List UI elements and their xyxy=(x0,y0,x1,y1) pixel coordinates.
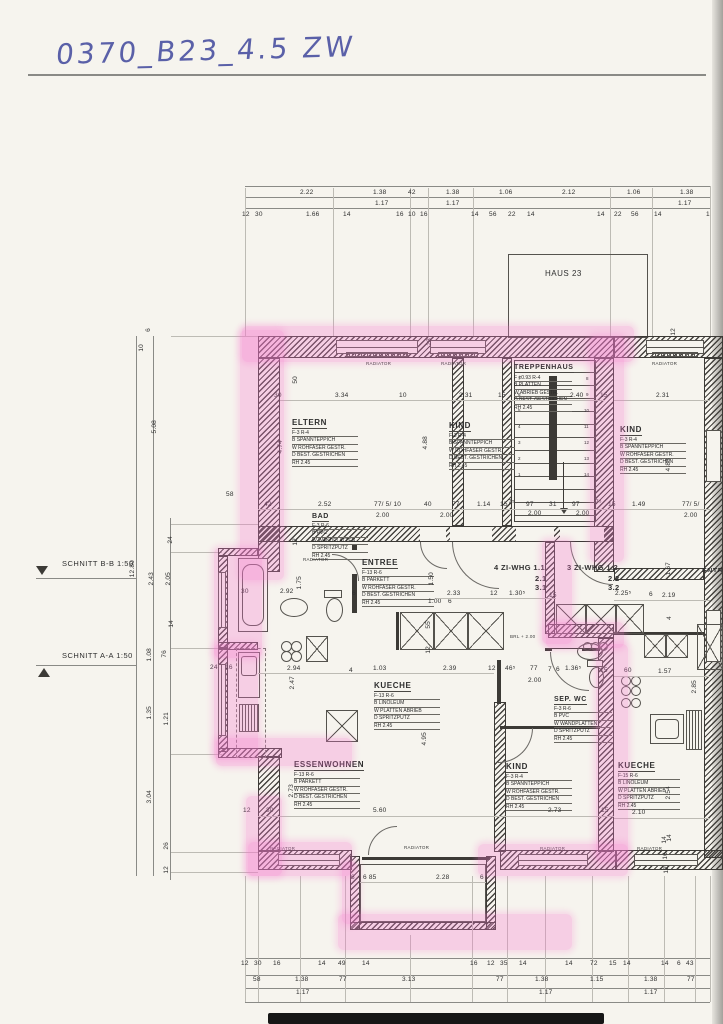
dim-label: 30 xyxy=(255,212,263,219)
spec-line: B PVC xyxy=(312,530,368,537)
witness-line xyxy=(695,876,696,1002)
radiator-label: RADIATOR xyxy=(366,361,391,366)
witness-line xyxy=(507,876,508,1002)
dim-label: 12 xyxy=(243,808,251,815)
dim-label: 14 xyxy=(343,212,351,219)
dim-label: 1.06 xyxy=(499,190,512,197)
dim-label: 50 xyxy=(293,376,300,384)
room-label-kueche: KUECHE xyxy=(374,681,411,692)
dim-label: 1.17 xyxy=(375,201,388,208)
dim-label: 2.33 xyxy=(447,591,460,598)
dim-label: 2.25⁵ xyxy=(615,591,631,598)
spec-line: D BEST. GESTRICHEN xyxy=(294,794,360,801)
room-label-bad: BAD xyxy=(312,513,329,522)
dim-line xyxy=(245,988,710,989)
window xyxy=(218,664,226,736)
dim-label: 2.31 xyxy=(656,393,669,400)
door-swing xyxy=(498,728,533,763)
dim-label: 77 xyxy=(452,502,460,509)
closet-box xyxy=(326,710,358,742)
scan-edge-bottom xyxy=(268,1013,604,1024)
spec-line: B PARKETT xyxy=(362,577,434,584)
dim-label: 77 xyxy=(530,666,538,673)
room-label-kueche-right: KUECHE xyxy=(618,761,655,772)
dim-label: 12 xyxy=(487,961,495,968)
witness-line xyxy=(428,188,429,336)
dim-label: 6 xyxy=(677,961,681,968)
dim-label: 1.50 xyxy=(429,572,436,585)
room-spec-kind-top: F-3 R-4 B SPANNTEPPICH W ROHFASER GESTR.… xyxy=(449,433,515,470)
dim-label: 58 xyxy=(226,492,234,499)
room-spec-treppenhaus: F ±0.93 R-4 B PLATTEN W ABRIEB GESTR. D … xyxy=(514,375,572,412)
room-label-kind-top: KIND xyxy=(449,421,471,432)
dim-label: 2.28 xyxy=(436,875,449,882)
spec-line: W ROHFASER GESTR. xyxy=(292,445,358,452)
apartment-label-whg1-2: 2.1 xyxy=(535,574,547,583)
dim-label: 1.03 xyxy=(373,666,386,673)
dim-label: 1.38 xyxy=(446,190,459,197)
dim-label: 6 xyxy=(352,591,356,598)
dim-label: 4 xyxy=(667,616,674,620)
dim-label: 12 xyxy=(426,646,433,654)
dim-label: 1.17 xyxy=(296,990,309,997)
stove-burner xyxy=(631,698,641,708)
section-label-bb: SCHNITT B-B 1:50 xyxy=(62,560,134,568)
window-line xyxy=(221,572,222,628)
room-label-sep-wc: SEP. WC xyxy=(554,696,587,705)
dim-line xyxy=(258,509,710,510)
dim-label: 77 xyxy=(687,977,695,984)
dim-label: 16 xyxy=(273,961,281,968)
dim-label: 12 xyxy=(164,866,171,874)
section-marker-bb-icon xyxy=(36,566,48,575)
witness-line xyxy=(171,552,222,553)
dim-label: 76 xyxy=(162,650,169,658)
dim-label: 6 xyxy=(351,875,355,882)
room-spec-bad: F-3 R-6 B PVC W WANDPLATTEN D SPRITZPUTZ… xyxy=(312,523,368,560)
dim-label: 2.00 xyxy=(440,513,453,520)
witness-line xyxy=(710,186,711,336)
window-line xyxy=(634,860,698,861)
spec-line: D BEST. GESTRICHEN xyxy=(362,592,434,599)
spec-line: B SPANNTEPPICH xyxy=(292,437,358,444)
apartment-label-whg2-2: 2.2 xyxy=(608,574,620,583)
spec-line: D BEST. GESTRICHEN xyxy=(620,459,686,466)
dim-line xyxy=(360,882,486,883)
door-swing xyxy=(420,542,447,569)
dim-label: 4.74 xyxy=(278,440,285,453)
dim-label: 7⁵ xyxy=(508,500,515,507)
spec-line: F-13 R-6 xyxy=(294,772,360,779)
haus-23-box xyxy=(508,254,648,338)
dim-label: 15 xyxy=(608,502,616,509)
dim-label: 35 xyxy=(500,961,508,968)
dim-label: 1.75 xyxy=(297,576,304,589)
radiator-symbol xyxy=(652,352,698,357)
dim-label: 2.31 xyxy=(459,393,472,400)
floor-plan-page: 0370_B23_4.5 ZW 2.22 1.38 42 1.38 1.06 2… xyxy=(0,0,723,1024)
dim-label: 58 xyxy=(253,977,261,984)
dim-label: 15 xyxy=(498,393,506,400)
dim-label: 6 xyxy=(649,592,653,599)
room-label-essenwohnen: ESSENWOHNEN xyxy=(294,760,364,771)
dim-line xyxy=(614,818,710,819)
room-spec-sep-wc: F-3 R-6 B PVC W WANDPLATTEN D SPRITZPUTZ… xyxy=(554,706,612,743)
spec-line: D BEST. GESTRICHEN xyxy=(506,796,572,803)
stair-number: 1 xyxy=(518,472,521,477)
dim-label: 14 xyxy=(623,961,631,968)
room-label-treppenhaus: TREPPENHAUS xyxy=(514,364,574,373)
spec-line: F-3 R-6 xyxy=(312,523,368,530)
dim-label: 2.22 xyxy=(300,190,313,197)
witness-line xyxy=(171,336,258,337)
dim-label: 2.00 xyxy=(528,511,541,518)
dim-label: 4.95 xyxy=(422,732,429,745)
dim-line xyxy=(245,1002,710,1003)
witness-line xyxy=(171,524,258,525)
spec-line: F-3 R-4 xyxy=(506,774,572,781)
closet-box xyxy=(697,624,723,670)
dim-label: 77/ 5/ xyxy=(682,502,699,509)
spec-line: F-3 R-4 xyxy=(449,433,515,440)
dim-line xyxy=(258,673,494,674)
dim-label: 15 xyxy=(600,393,608,400)
window-line xyxy=(646,347,704,348)
dim-label: 1.30⁵ xyxy=(509,591,525,598)
dim-label: 14 xyxy=(654,212,662,219)
dim-label: 2.94 xyxy=(287,666,300,673)
radiator-label: RADIATOR xyxy=(652,361,677,366)
balcony-wall xyxy=(350,856,360,930)
stair-number: 13 xyxy=(584,456,589,461)
dim-label: 1.36⁵ xyxy=(565,666,581,673)
dim-label: 12 xyxy=(293,538,300,546)
spec-line: B SPANNTEPPICH xyxy=(506,781,572,788)
room-spec-kind-bottom: F-3 R-4 B SPANNTEPPICH W ROHFASER GESTR.… xyxy=(506,774,572,811)
dim-label: 22 xyxy=(508,212,516,219)
apartment-label-whg1: 4 ZI-WHG 1.1 xyxy=(494,563,545,572)
dim-label: 2.40 xyxy=(570,393,583,400)
dim-label: 1.17 xyxy=(446,201,459,208)
dim-label: 15 xyxy=(609,961,617,968)
spec-line: F-3 R-4 xyxy=(292,430,358,437)
stair-number: 8 xyxy=(586,376,589,381)
spec-line: F ±0.93 R-4 xyxy=(514,375,572,382)
radiator-label: RADIATOR xyxy=(404,845,429,850)
parapet-label: BRL + 2.00 xyxy=(510,634,535,639)
dim-label: 16 xyxy=(663,852,670,860)
dim-label: 1 xyxy=(706,212,710,219)
spec-line: D SPRITZPUTZ xyxy=(554,728,612,735)
kitchen-sink-bowl xyxy=(655,719,679,739)
dim-label: 14 xyxy=(519,961,527,968)
dim-label: 2.85 xyxy=(692,680,699,693)
hob-ring xyxy=(599,642,608,651)
dim-label: 14 xyxy=(662,836,669,844)
dim-label: 72 xyxy=(590,961,598,968)
wall-thin xyxy=(497,660,501,704)
spec-line: RH 2.45 xyxy=(449,463,515,470)
dim-label: 2.54 xyxy=(666,786,673,799)
spec-line: D SPRITZPUTZ xyxy=(312,545,368,552)
dim-label: 14 xyxy=(471,212,479,219)
spec-line: D BEST. GESTRICHEN xyxy=(449,455,515,462)
dim-label: 16 xyxy=(420,212,428,219)
stair-number: 9 xyxy=(586,392,589,397)
spec-line: W ROHFASER GESTR. xyxy=(362,585,434,592)
wall xyxy=(258,756,280,852)
dim-line xyxy=(614,676,710,677)
stove-burner xyxy=(291,651,302,662)
dim-line xyxy=(245,186,710,187)
window-line xyxy=(430,347,486,348)
dim-label: 5.08 xyxy=(152,420,159,433)
window-line xyxy=(278,860,340,861)
spec-line: F-13 R-6 xyxy=(374,693,440,700)
dim-label: 43 xyxy=(686,961,694,968)
drawing-title: 0370_B23_4.5 ZW xyxy=(54,30,356,71)
dim-label: 2.47 xyxy=(290,676,297,689)
closet-box xyxy=(556,604,586,634)
dim-label: 3.34 xyxy=(335,393,348,400)
bath-sink xyxy=(280,598,308,617)
dim-label: 14 xyxy=(169,620,176,628)
spec-line: B PARKETT xyxy=(294,779,360,786)
dim-label: 2.52 xyxy=(318,502,331,509)
dim-label: 55 xyxy=(426,621,433,629)
dim-label: 2.12 xyxy=(562,190,575,197)
dim-label: 1.38 xyxy=(373,190,386,197)
dim-label: 1.17 xyxy=(644,990,657,997)
door-sill xyxy=(362,857,490,860)
dim-label: 42 xyxy=(264,502,272,509)
dim-label: 49 xyxy=(338,961,346,968)
spec-line: RH 2.45 xyxy=(506,804,572,811)
spec-line: W WANDPLATTEN xyxy=(554,721,612,728)
dim-label: 12 xyxy=(488,666,496,673)
stair-number: 11 xyxy=(584,424,589,429)
wall-thin xyxy=(396,612,399,650)
stair-number: 12 xyxy=(584,440,589,445)
dim-label: 2.92 xyxy=(280,589,293,596)
dim-label: 14 xyxy=(527,212,535,219)
kitchen-counter xyxy=(236,648,266,758)
dim-line xyxy=(614,400,710,401)
dim-label: 77 xyxy=(496,977,504,984)
dim-line xyxy=(436,598,556,599)
dim-label: 15 xyxy=(500,502,508,509)
witness-line xyxy=(245,876,246,1002)
dim-label: 56 xyxy=(489,212,497,219)
title-underline xyxy=(28,74,706,76)
dim-label: 15 xyxy=(600,668,608,675)
spec-line: F-15 R-6 xyxy=(618,773,680,780)
balcony-wall xyxy=(350,922,496,930)
dim-label: 14 xyxy=(565,961,573,968)
room-spec-kueche: F-13 R-6 B LINOLEUM W PLATTEN ABRIEB D S… xyxy=(374,693,440,730)
room-label-kind-bottom: KIND xyxy=(506,762,528,773)
door-opening xyxy=(420,527,446,541)
room-spec-essenwohnen: F-13 R-6 B PARKETT W ROHFASER GESTR. D B… xyxy=(294,772,360,809)
dim-label: 14 xyxy=(597,212,605,219)
dim-label: 31 xyxy=(549,502,557,509)
door-opening xyxy=(560,527,604,541)
dim-label: 14 xyxy=(362,961,370,968)
dim-label: 1.06 xyxy=(627,190,640,197)
dim-label: 6 xyxy=(448,599,452,606)
dim-label: 1.17 xyxy=(539,990,552,997)
section-line-bb xyxy=(36,578,136,579)
dim-label: 2.00 xyxy=(576,511,589,518)
balcony-floor xyxy=(360,864,486,922)
dim-label: 12 xyxy=(490,591,498,598)
witness-line xyxy=(410,935,411,1002)
stair-number: 10 xyxy=(584,408,589,413)
window-line xyxy=(336,347,418,348)
room-label-eltern: ELTERN xyxy=(292,418,327,429)
spec-line: RH 2.45 xyxy=(620,467,686,474)
dim-label: 28 xyxy=(427,338,434,346)
witness-line xyxy=(472,876,473,1002)
dim-label: 10 xyxy=(399,393,407,400)
spec-line: RH 2.45 xyxy=(294,802,360,809)
dim-label: 3.04 xyxy=(147,790,154,803)
closet-box xyxy=(616,604,644,634)
dim-label: 30 xyxy=(254,961,262,968)
room-label-entree-right-clip: ENTREE xyxy=(702,560,723,572)
spec-line: B PVC xyxy=(554,713,612,720)
dim-label: 1.08 xyxy=(147,648,154,661)
dim-label: 56 xyxy=(631,212,639,219)
dim-label: 7 xyxy=(548,667,552,674)
spec-line: F-13 R-6 xyxy=(362,570,434,577)
haus-23-label: HAUS 23 xyxy=(545,270,582,278)
dim-line xyxy=(280,400,604,401)
spec-line: F-3 R-4 xyxy=(620,437,686,444)
window-line xyxy=(221,664,222,736)
dim-label: 4.88 xyxy=(423,436,430,449)
dim-label: 30 xyxy=(266,808,274,815)
dim-label: 1.57 xyxy=(658,669,671,676)
dishwasher xyxy=(686,710,702,750)
wall xyxy=(614,568,704,580)
witness-line xyxy=(652,188,653,336)
dim-label: 6 xyxy=(556,667,560,674)
dim-label: 3.13 xyxy=(402,977,415,984)
dim-label: 97 xyxy=(572,502,580,509)
spec-line: F-3 R-6 xyxy=(554,706,612,713)
dim-label: 30 xyxy=(241,589,249,596)
dim-line xyxy=(245,208,710,209)
spec-line: RH 2.45 xyxy=(618,803,680,810)
closet-box xyxy=(434,612,468,650)
dim-label: 97 xyxy=(526,502,534,509)
dim-label: 5.60 xyxy=(373,808,386,815)
radiator-label: RADIATOR xyxy=(270,846,295,851)
dim-label: 2.43 xyxy=(149,572,156,585)
dim-label: 14 xyxy=(661,961,669,968)
dim-label: 24 xyxy=(210,665,218,672)
window xyxy=(218,572,226,628)
witness-line xyxy=(171,648,222,649)
witness-line xyxy=(710,876,711,1002)
closet-box xyxy=(586,604,616,634)
dim-line xyxy=(614,600,710,601)
dim-label: 14 xyxy=(318,961,326,968)
dim-label: 1.00 xyxy=(428,599,441,606)
apartment-label-whg1-3: 3.1 xyxy=(535,583,547,592)
dim-line xyxy=(245,197,710,198)
wall xyxy=(494,702,506,852)
dim-label: 77 xyxy=(339,977,347,984)
section-marker-aa-icon xyxy=(38,668,50,677)
spec-line: W ROHFASER GESTR. xyxy=(449,448,515,455)
dim-label: 2.19 xyxy=(662,593,675,600)
radiator-label: RADIATOR xyxy=(637,846,662,851)
spec-line: RH 2.45 xyxy=(374,723,440,730)
dim-label: 60 xyxy=(624,668,632,675)
dim-label: 26 xyxy=(164,842,171,850)
spec-line: B LINOLEUM xyxy=(374,700,440,707)
dim-line xyxy=(245,975,710,976)
dim-label: 16 xyxy=(396,212,404,219)
spec-line: B SPANNTEPPICH xyxy=(449,440,515,447)
radiator-symbol xyxy=(346,352,408,357)
stair-arrow-line xyxy=(563,462,564,510)
dim-line xyxy=(245,958,710,959)
dim-label: 2.05 xyxy=(166,572,173,585)
room-spec-kind-right: F-3 R-4 B SPANNTEPPICH W ROHFASER GESTR.… xyxy=(620,437,686,474)
closet-box xyxy=(666,634,688,658)
section-line-aa xyxy=(36,665,136,666)
dim-label: 16 xyxy=(470,961,478,968)
closet-box xyxy=(400,612,434,650)
spec-line: W ROHFASER GESTR. xyxy=(620,452,686,459)
dim-label: 6 85 xyxy=(363,875,376,882)
dim-label: 2.73 xyxy=(548,808,561,815)
witness-line xyxy=(171,754,222,755)
witness-line xyxy=(171,852,258,853)
closet-box xyxy=(468,612,504,650)
witness-line xyxy=(171,872,258,873)
section-label-aa: SCHNITT A-A 1:50 xyxy=(62,652,133,660)
dim-label: 1.17 xyxy=(678,201,691,208)
dim-label: 1.15 xyxy=(590,977,603,984)
spec-line: B SPANNTEPPICH xyxy=(620,444,686,451)
room-spec-eltern: F-3 R-4 B SPANNTEPPICH W ROHFASER GESTR.… xyxy=(292,430,358,467)
door-opening xyxy=(450,527,492,541)
dim-label: 12 xyxy=(671,328,678,336)
dim-label: 1.66 xyxy=(306,212,319,219)
dim-label: 16 xyxy=(225,665,233,672)
stove-burner xyxy=(631,676,641,686)
spec-line: D SPRITZPUTZ xyxy=(374,715,440,722)
radiator-label: RADIATOR xyxy=(303,557,328,562)
dim-label: 1.38 xyxy=(295,977,308,984)
dim-label: 6 xyxy=(480,875,484,882)
door-swing xyxy=(368,826,397,855)
dim-label: 1.38 xyxy=(535,977,548,984)
closet-box xyxy=(644,634,666,658)
wall xyxy=(218,548,258,556)
door-swing xyxy=(452,542,499,589)
dim-label: 1.38 xyxy=(680,190,693,197)
dim-label: 1.14 xyxy=(477,502,490,509)
toilet-bowl xyxy=(326,598,343,622)
dim-label: 24 xyxy=(168,536,175,544)
room-label-kind-right: KIND xyxy=(620,425,642,436)
stove-burner xyxy=(621,676,631,686)
